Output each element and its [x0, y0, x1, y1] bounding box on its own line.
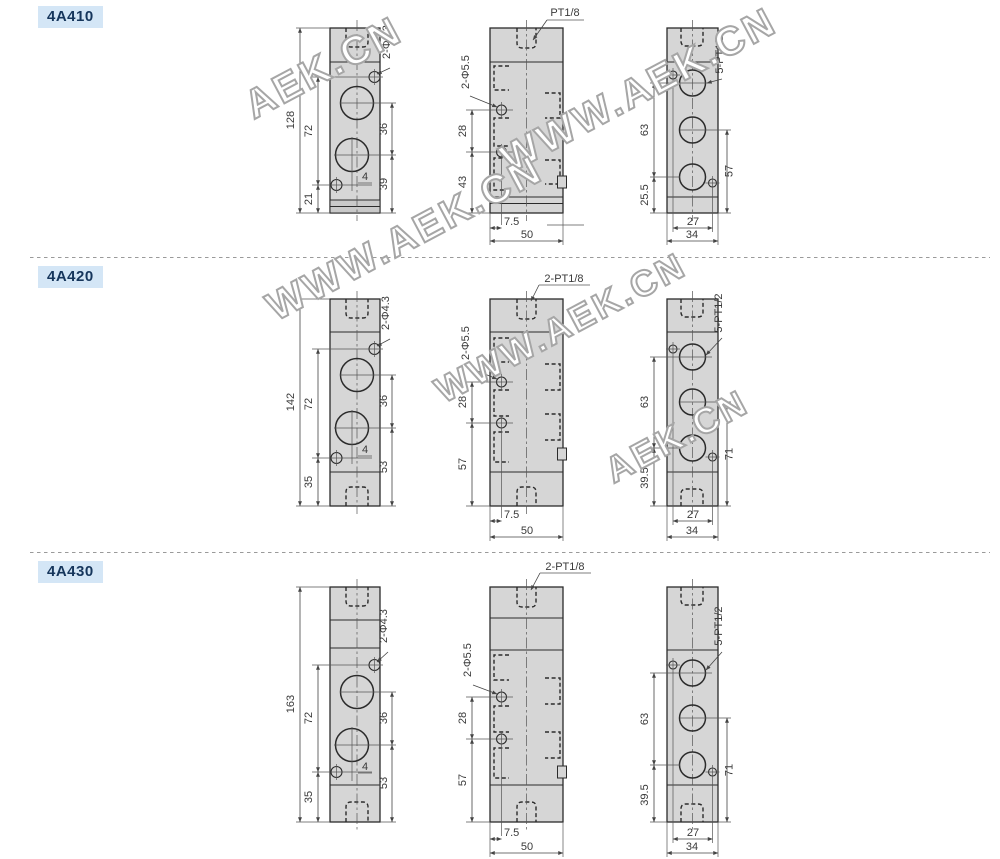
label-mount-holes: 2-Φ4.3: [380, 296, 392, 330]
label-mount-holes: 2-Φ4.3: [378, 609, 390, 643]
dim-overall-height: 163: [285, 695, 297, 713]
dim-body-width: 50: [521, 525, 533, 537]
dim-port-offset: 4: [362, 171, 368, 183]
label-pilot-holes: 2-Φ5.5: [460, 55, 472, 89]
dim-port-to-bottom: 25.5: [639, 184, 651, 205]
dim-hole-from-edge: 7.5: [504, 216, 519, 228]
label-top-port: 2-PT1/8: [545, 561, 584, 573]
dim-screw-spacing: 27: [687, 509, 699, 521]
dim-port-to-bottom: 39.5: [639, 784, 651, 805]
dim-screw-spacing: 27: [687, 216, 699, 228]
label-ports: 5-PT1/2: [713, 606, 725, 645]
view-4a430-side: 28 57 7.5 50 2-Φ5.5 2-PT1/8: [457, 561, 591, 857]
dim-overall-height: 128: [285, 111, 297, 129]
side-notch: [558, 766, 567, 778]
dim-port-spacing: 36: [378, 123, 390, 135]
view-4a420-front: 142 72 35 36 53 4 2-Φ4.3: [285, 291, 396, 514]
side-notch: [558, 448, 567, 460]
dim-port-spacing: 36: [378, 395, 390, 407]
dim-port-to-bottom: 53: [378, 777, 390, 789]
series-badge-4a430: 4A430: [38, 561, 103, 583]
dim-hole-spacing: 28: [457, 125, 469, 137]
dim-port-spacing: 36: [378, 712, 390, 724]
dim-hole-from-edge: 7.5: [504, 827, 519, 839]
view-4a430-back: 63 39.5 71 27 34 5-PT1/2: [639, 579, 736, 857]
label-pilot-holes: 2-Φ5.5: [462, 643, 474, 677]
dim-port-spacing: 63: [639, 713, 651, 725]
dim-port-spacing: 63: [639, 124, 651, 136]
dim-screw-to-bottom: 35: [303, 791, 315, 803]
dim-body-width: 34: [686, 841, 698, 853]
label-top-port: 2-PT1/8: [544, 273, 583, 285]
dim-hole-to-bottom: 57: [457, 458, 469, 470]
view-4a430-front: 163 72 35 36 53 4 2-Φ4.3: [285, 579, 396, 830]
valve-dimension-catalog-page: 4A410 4A420 4A430: [0, 0, 1000, 859]
dim-hole-to-bottom: 57: [457, 774, 469, 786]
dim-screw-to-bottom: 35: [303, 476, 315, 488]
dim-mid-port-to-bottom: 57: [724, 165, 736, 177]
series-badge-4a420: 4A420: [38, 266, 103, 288]
dim-mid-port-to-bottom: 71: [724, 764, 736, 776]
dim-port-to-bottom: 53: [378, 461, 390, 473]
dim-screw-spacing: 27: [687, 827, 699, 839]
label-ports: 5-PT1/2: [713, 293, 725, 332]
dim-screw-spacing: 72: [303, 712, 315, 724]
dim-hole-from-edge: 7.5: [504, 509, 519, 521]
dim-port-offset: 4: [362, 444, 368, 456]
valve-body: [330, 587, 380, 822]
dim-hole-spacing: 28: [457, 712, 469, 724]
dim-port-spacing: 63: [639, 396, 651, 408]
dim-screw-to-bottom: 21: [303, 193, 315, 205]
dim-port-offset: 4: [362, 761, 368, 773]
label-top-port: PT1/8: [550, 7, 579, 19]
dim-body-width: 34: [686, 229, 698, 241]
side-notch: [558, 176, 567, 188]
dim-body-width: 50: [521, 229, 533, 241]
series-badge-4a410: 4A410: [38, 6, 103, 28]
dimension-drawings: 128 72 21 36 39 4 2-Φ4.3 28: [0, 0, 1000, 859]
dim-body-width: 34: [686, 525, 698, 537]
dim-mid-port-to-bottom: 71: [724, 448, 736, 460]
dim-port-to-bottom: 39: [378, 178, 390, 190]
dim-screw-spacing: 72: [303, 125, 315, 137]
dim-overall-height: 142: [285, 393, 297, 411]
dim-body-width: 50: [521, 841, 533, 853]
valve-body: [330, 299, 380, 506]
dim-screw-spacing: 72: [303, 398, 315, 410]
